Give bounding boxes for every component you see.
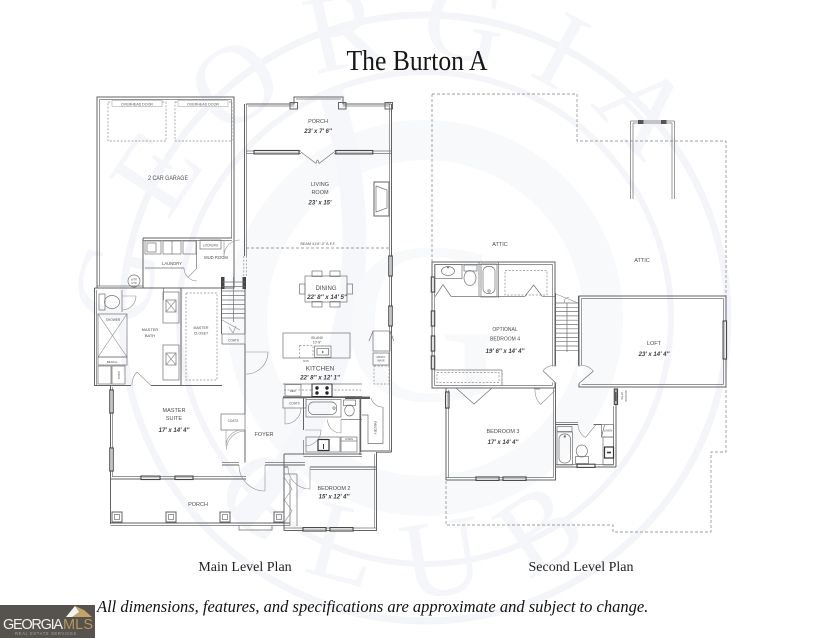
svg-text:WAVE: WAVE: [377, 359, 385, 363]
svg-text:PORCH: PORCH: [308, 119, 328, 125]
svg-text:22′ 8″ x 12′ 1″: 22′ 8″ x 12′ 1″: [299, 375, 341, 382]
svg-text:BENCH: BENCH: [107, 360, 118, 364]
svg-text:ATTIC: ATTIC: [634, 258, 650, 264]
svg-text:LIVING: LIVING: [311, 182, 329, 188]
svg-text:KITCHEN: KITCHEN: [306, 366, 335, 373]
svg-text:COATS: COATS: [228, 339, 239, 343]
svg-text:ATTIC: ATTIC: [620, 392, 624, 400]
svg-text:LAUNDRY: LAUNDRY: [162, 261, 182, 266]
svg-text:OPTIONAL: OPTIONAL: [492, 327, 518, 333]
svg-text:D/W: D/W: [303, 359, 309, 363]
svg-text:LOCKERS: LOCKERS: [203, 244, 218, 248]
svg-text:PANTRY: PANTRY: [373, 421, 377, 435]
svg-text:SUITE: SUITE: [166, 416, 183, 422]
svg-text:OVERHEAD DOOR: OVERHEAD DOOR: [121, 103, 153, 107]
svg-text:10′-8″: 10′-8″: [313, 341, 322, 345]
svg-text:Second Level Plan: Second Level Plan: [529, 560, 634, 575]
svg-text:ACCESS: ACCESS: [624, 390, 628, 402]
svg-text:All dimensions, features, and: All dimensions, features, and specificat…: [96, 597, 648, 616]
svg-text:HTR: HTR: [131, 281, 136, 285]
svg-text:Main Level Plan: Main Level Plan: [198, 560, 291, 575]
svg-text:17′ x 14′ 4″: 17′ x 14′ 4″: [488, 440, 520, 446]
svg-text:17′ x 14′ 4″: 17′ x 14′ 4″: [159, 428, 191, 434]
svg-text:The Burton A: The Burton A: [347, 45, 488, 77]
svg-text:COATS: COATS: [289, 402, 300, 406]
svg-text:MASTER: MASTER: [194, 326, 209, 330]
svg-text:BEDROOM 4: BEDROOM 4: [490, 337, 520, 343]
svg-text:BEDROOM 2: BEDROOM 2: [317, 486, 350, 492]
svg-text:LINEN: LINEN: [117, 371, 121, 379]
svg-text:ISLAND: ISLAND: [311, 336, 324, 340]
svg-text:22′ 8″ x 14′ 5″: 22′ 8″ x 14′ 5″: [306, 294, 348, 301]
svg-text:MASTER: MASTER: [142, 327, 159, 332]
svg-text:ROOM: ROOM: [311, 190, 329, 196]
svg-text:COATS: COATS: [228, 419, 239, 423]
svg-text:OVERHEAD DOOR: OVERHEAD DOOR: [187, 103, 219, 107]
svg-text:BEDROOM 3: BEDROOM 3: [486, 429, 519, 435]
svg-text:FOYER: FOYER: [255, 432, 274, 438]
svg-text:SHOWER: SHOWER: [106, 318, 121, 322]
svg-text:LINEN: LINEN: [345, 437, 353, 441]
svg-text:DINING: DINING: [316, 286, 337, 292]
svg-text:BATH: BATH: [145, 333, 155, 338]
svg-text:23′ x 7′ 6″: 23′ x 7′ 6″: [303, 129, 333, 135]
svg-text:23′ x 15′: 23′ x 15′: [308, 201, 332, 207]
svg-text:23′ x 14′ 4″: 23′ x 14′ 4″: [638, 352, 671, 358]
svg-text:ATTIC: ATTIC: [492, 242, 508, 248]
svg-text:REAL ESTATE SERVICES: REAL ESTATE SERVICES: [15, 631, 77, 636]
svg-text:2 CAR GARAGE: 2 CAR GARAGE: [148, 176, 188, 182]
svg-text:CLOSET: CLOSET: [194, 332, 209, 336]
svg-text:MICRO: MICRO: [377, 355, 386, 359]
svg-text:19′ 6″ x 14′ 4″: 19′ 6″ x 14′ 4″: [486, 349, 526, 355]
svg-text:LOFT: LOFT: [647, 341, 662, 347]
svg-text:PORCH: PORCH: [188, 502, 208, 508]
svg-text:BEAM 41′6″-0″ A.F.F.: BEAM 41′6″-0″ A.F.F.: [300, 242, 335, 246]
svg-text:REF.: REF.: [290, 389, 297, 393]
svg-text:G: G: [342, 195, 508, 450]
svg-text:15′ x 12′ 4″: 15′ x 12′ 4″: [319, 495, 351, 501]
svg-text:MUD ROOM: MUD ROOM: [204, 255, 228, 260]
svg-text:LINEN: LINEN: [604, 429, 612, 433]
svg-text:MASTER: MASTER: [163, 408, 186, 414]
